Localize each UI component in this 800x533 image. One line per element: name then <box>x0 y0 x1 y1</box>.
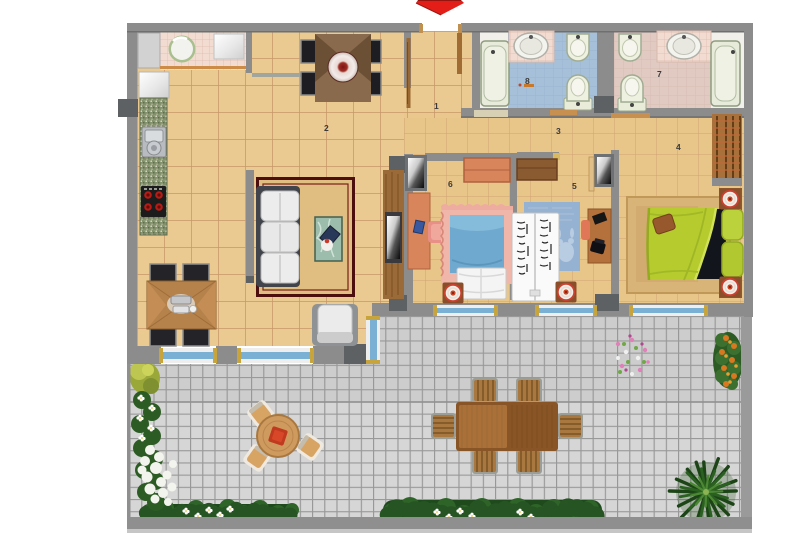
svg-text:2: 2 <box>324 123 329 133</box>
svg-text:5: 5 <box>572 181 577 191</box>
svg-text:4: 4 <box>676 142 681 152</box>
svg-text:3: 3 <box>556 126 561 136</box>
svg-text:1: 1 <box>434 101 439 111</box>
svg-text:7: 7 <box>657 69 662 79</box>
svg-text:6: 6 <box>448 179 453 189</box>
svg-text:8: 8 <box>525 76 530 86</box>
